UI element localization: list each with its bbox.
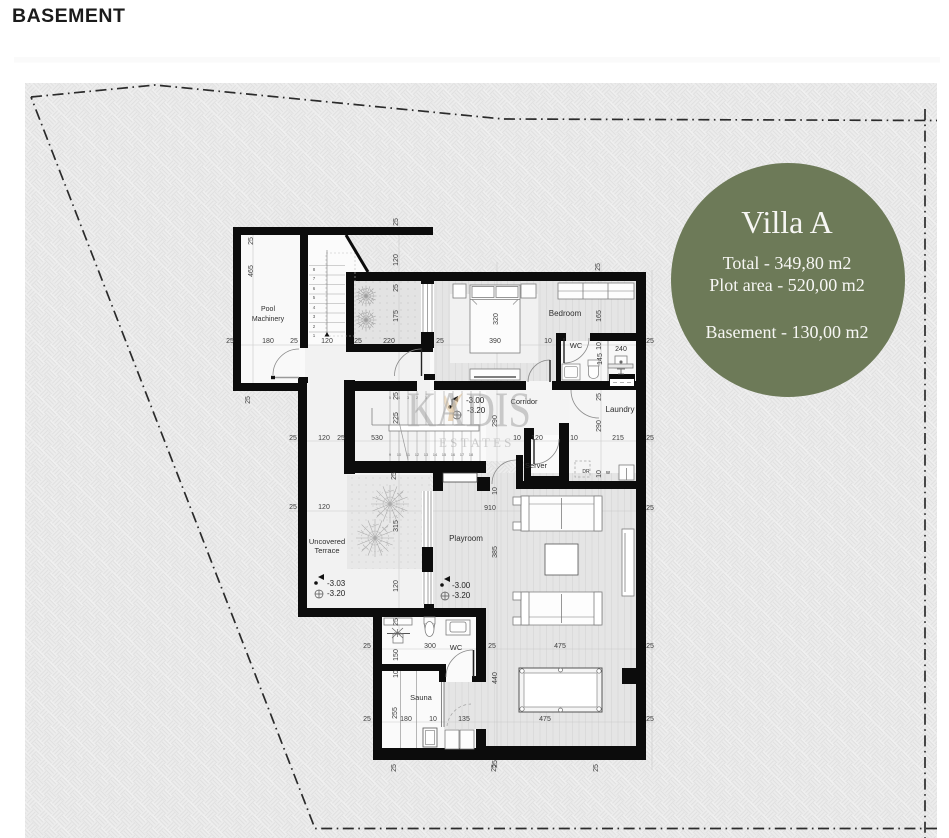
svg-text:120: 120 [321,338,333,345]
svg-text:175: 175 [393,310,400,322]
svg-text:Sauna: Sauna [410,693,433,702]
svg-text:180: 180 [400,716,412,723]
svg-text:465: 465 [248,265,255,277]
svg-text:225: 225 [393,412,400,424]
svg-text:12: 12 [415,452,420,457]
svg-text:ESTATES: ESTATES [439,435,515,450]
svg-text:-3.20: -3.20 [452,591,471,600]
svg-text:25: 25 [391,472,398,480]
svg-text:475: 475 [539,716,551,723]
svg-text:25: 25 [646,716,654,723]
svg-text:13: 13 [424,452,429,457]
svg-text:DR: DR [582,469,590,475]
svg-text:145: 145 [597,353,604,365]
svg-text:440: 440 [492,672,499,684]
svg-text:Bedroom: Bedroom [549,309,582,318]
svg-text:-3.00: -3.00 [452,581,471,590]
svg-text:Machinery: Machinery [252,316,285,323]
svg-text:Server: Server [525,461,548,470]
svg-text:390: 390 [489,338,501,345]
svg-text:25: 25 [646,505,654,512]
svg-text:120: 120 [318,504,330,511]
svg-text:10: 10 [397,452,402,457]
svg-text:25: 25 [391,764,398,772]
svg-text:25: 25 [337,435,345,442]
svg-text:255: 255 [392,707,399,719]
svg-text:25: 25 [596,393,603,401]
svg-text:15: 15 [442,452,447,457]
svg-text:150: 150 [393,649,400,661]
svg-text:910: 910 [484,505,496,512]
svg-text:WC: WC [450,643,463,652]
svg-text:120: 120 [318,435,330,442]
svg-text:120: 120 [393,580,400,592]
svg-text:-3.03: -3.03 [327,579,346,588]
svg-text:Terrace: Terrace [314,546,339,555]
svg-text:135: 135 [458,716,470,723]
svg-text:10: 10 [544,338,552,345]
svg-text:165: 165 [596,310,603,322]
svg-text:16: 16 [451,452,456,457]
svg-text:25: 25 [248,237,255,245]
svg-text:315: 315 [393,520,400,532]
svg-text:220: 220 [383,338,395,345]
svg-text:120: 120 [531,435,543,442]
svg-text:25: 25 [363,716,371,723]
svg-text:25: 25 [226,338,234,345]
svg-text:14: 14 [433,452,438,457]
svg-text:320: 320 [493,313,500,325]
svg-text:25: 25 [245,396,252,404]
svg-text:10: 10 [596,470,603,478]
svg-text:25: 25 [363,643,371,650]
svg-text:25: 25 [354,338,362,345]
svg-text:25: 25 [290,338,298,345]
svg-text:25: 25 [488,643,496,650]
svg-text:25: 25 [646,435,654,442]
svg-text:25: 25 [593,764,600,772]
svg-text:25: 25 [393,218,400,226]
svg-text:215: 215 [612,435,624,442]
svg-text:290: 290 [596,420,603,432]
svg-text:25: 25 [289,504,297,511]
svg-text:17: 17 [460,452,465,457]
svg-text:25: 25 [393,618,400,626]
svg-text:18: 18 [469,452,474,457]
svg-text:530: 530 [371,435,383,442]
svg-text:Plot area - 520,00 m2: Plot area - 520,00 m2 [709,275,864,295]
svg-text:Pool: Pool [261,306,275,313]
svg-text:WC: WC [570,341,583,350]
svg-text:Basement - 130,00 m2: Basement - 130,00 m2 [706,322,869,342]
svg-text:Laundry: Laundry [606,405,635,414]
svg-text:25: 25 [393,284,400,292]
svg-text:475: 475 [554,643,566,650]
svg-text:KADIS: KADIS [407,381,531,437]
svg-text:-3.20: -3.20 [327,589,346,598]
svg-text:25: 25 [491,764,498,772]
svg-text:25: 25 [646,643,654,650]
svg-text:Uncovered: Uncovered [309,537,345,546]
svg-text:Total - 349,80 m2: Total - 349,80 m2 [723,253,852,273]
svg-text:25: 25 [595,263,602,271]
svg-text:385: 385 [492,546,499,558]
svg-text:25: 25 [289,435,297,442]
svg-text:Villa A: Villa A [741,204,832,240]
svg-text:Playroom: Playroom [449,534,483,543]
svg-text:180: 180 [262,338,274,345]
svg-text:240: 240 [615,346,627,353]
svg-text:w: w [605,470,610,476]
svg-text:10: 10 [596,342,603,350]
svg-text:10: 10 [393,670,400,678]
svg-text:25: 25 [393,392,400,400]
svg-text:BASEMENT: BASEMENT [12,5,125,27]
svg-text:25: 25 [436,338,444,345]
svg-text:10: 10 [570,435,578,442]
svg-text:120: 120 [393,254,400,266]
svg-text:10: 10 [492,487,499,495]
svg-text:300: 300 [424,643,436,650]
svg-text:10: 10 [429,716,437,723]
svg-text:25: 25 [646,338,654,345]
